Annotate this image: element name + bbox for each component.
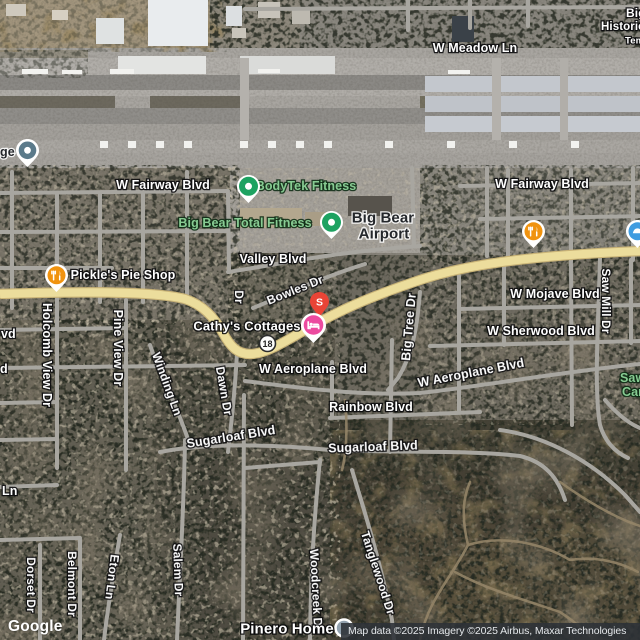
svg-text:18: 18	[262, 339, 272, 349]
svg-text:S: S	[315, 296, 322, 308]
